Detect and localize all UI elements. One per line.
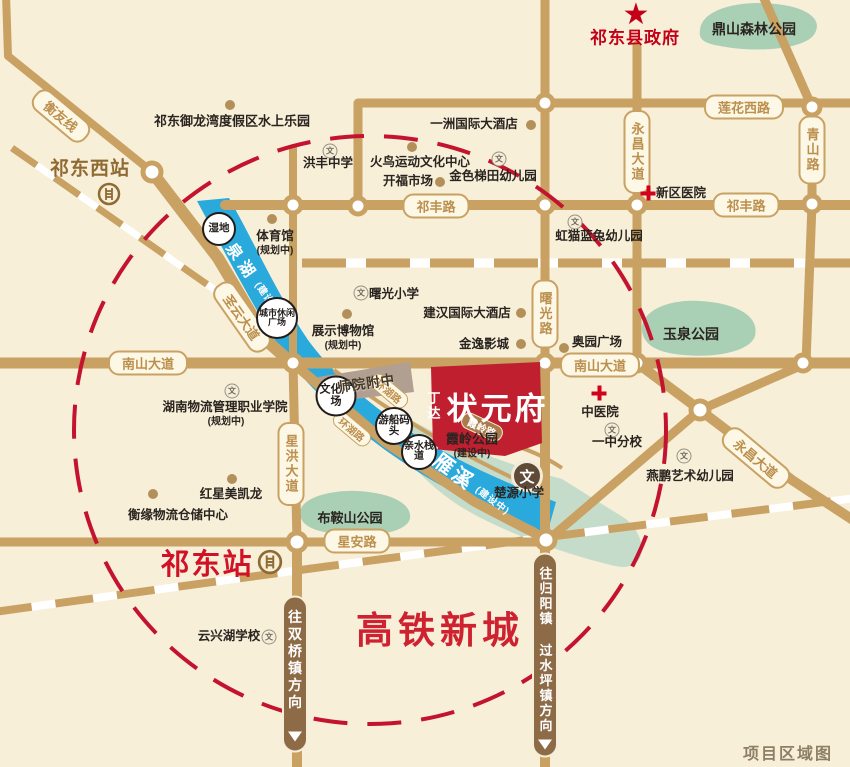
west-station-label: 祁东西站 — [50, 154, 130, 181]
school-icon: 文 — [677, 449, 692, 464]
road-pill-nanshan-avenue-west: 南山大道 — [108, 351, 188, 376]
poi-dot — [526, 120, 536, 130]
poi-label-new-district-hospital: 新区医院 — [656, 186, 706, 200]
poi-dot — [267, 214, 277, 224]
poi-label-kaifu-market: 开福市场 — [383, 174, 433, 188]
school-icon: 文 — [492, 152, 507, 167]
poi-dot — [516, 308, 526, 318]
poi-status-exhibition-museum: (规划中) — [325, 337, 362, 352]
road-pill-yongchang-avenue-north: 永昌大道 — [624, 110, 651, 194]
road-pill-qifeng-road-east: 祁丰路 — [712, 193, 779, 218]
road-pill-shuguang-road: 曙光路 — [532, 280, 559, 349]
poi-label-yanpeng-kindergarten: 燕鹏艺术幼儿园 — [646, 469, 734, 483]
road-pill-xinghong-avenue: 星洪大道 — [278, 422, 305, 506]
poi-label-hongmao-kindergarten: 虹猫蓝兔幼儿园 — [555, 229, 643, 243]
road-pill-nanshan-avenue-east: 南山大道 — [560, 353, 640, 378]
poi-label-jianhan-hotel: 建汉国际大酒店 — [423, 306, 511, 320]
poi-label-aoyuan-plaza: 奥园广场 — [572, 335, 622, 349]
poi-label-hongfeng-school: 洪丰中学 — [303, 156, 353, 170]
hospital-cross-icon — [641, 186, 656, 201]
school-icon: 文 — [568, 215, 583, 230]
poi-label-yizhong-branch: 一中分校 — [592, 435, 642, 449]
project-label: 丁达 状元府 — [427, 384, 548, 429]
marker-text: 亲水栈道 — [403, 442, 435, 463]
project-name: 状元府 — [447, 384, 549, 429]
down-arrow-icon — [288, 732, 302, 742]
poi-label-shuguang-school: 曙光小学 — [369, 287, 419, 301]
marker-text: 游船码头 — [377, 415, 411, 437]
map-caption: 项目区域图 — [743, 740, 833, 764]
railway-station-icon — [257, 549, 281, 573]
poi-label-hengyuan-logistics: 衡缘物流仓储中心 — [128, 508, 228, 522]
direction-sign-text: 往归阳镇 过水坪镇方向 — [539, 567, 552, 734]
marker-city-leisure-plaza: 城市休闲广场 — [256, 297, 298, 339]
marker-text: 城市休闲广场 — [258, 309, 296, 328]
county-government-label: 祁东县政府 — [590, 24, 680, 49]
poi-status-gymnasium: (规划中) — [257, 242, 294, 257]
school-icon: 文 — [354, 286, 369, 301]
down-arrow-icon — [538, 740, 552, 750]
park-label-buanshan: 布鞍山公园 — [317, 508, 382, 527]
poi-dot — [227, 474, 237, 484]
school-icon: 文 — [262, 630, 277, 645]
railway-station-icon — [97, 182, 121, 206]
poi-label-tcm-hospital: 中医院 — [581, 405, 619, 419]
poi-label-yunxinghu-school: 云兴湖学校 — [198, 629, 261, 643]
hospital-cross-icon — [592, 386, 607, 401]
poi-dot — [435, 177, 445, 187]
poi-status-logistics-college: (规划中) — [208, 413, 245, 428]
park-shapes — [300, 3, 817, 567]
marker-wetland: 湿地 — [202, 212, 236, 246]
poi-label-hongxing: 红星美凯龙 — [200, 487, 263, 501]
school-icon: 文 — [225, 384, 240, 399]
poi-dot — [225, 100, 235, 110]
poi-label-jinse-kindergarten: 金色梯田幼儿园 — [449, 169, 537, 183]
poi-dot — [148, 489, 158, 499]
poi-label-yulongwan: 祁东御龙湾度假区水上乐园 — [154, 115, 310, 130]
poi-dot — [407, 142, 417, 152]
direction-sign-text: 往双桥镇方向 — [288, 610, 302, 712]
road-pill-qifeng-road-west: 祁丰路 — [402, 194, 469, 219]
poi-dot — [559, 343, 569, 353]
poi-dot — [516, 339, 526, 349]
park-label-dingshan: 鼎山森林公园 — [712, 19, 796, 39]
poi-label-jinyi-cinema: 金逸影城 — [459, 337, 509, 351]
direction-sign-guiyang-shuiping: 往归阳镇 过水坪镇方向 — [532, 553, 558, 758]
park-label-yuquan: 玉泉公园 — [663, 324, 719, 344]
marker-waterside-walk: 亲水栈道 — [401, 434, 437, 470]
poi-label-yizhou-hotel: 一洲国际大酒店 — [430, 117, 518, 131]
road-pill-qingshan-road: 青山路 — [799, 116, 826, 185]
poi-label-chuyuan-school: 楚源小学 — [494, 486, 544, 500]
direction-sign-shuangqiao: 往双桥镇方向 — [282, 596, 308, 753]
road-pill-lianhua-west-road: 莲花西路 — [704, 95, 784, 120]
main-station-label: 祁东站 — [160, 541, 253, 583]
project-area-map: 衡友线 圣云大道 祁丰路 祁丰路 莲花西路 青山路 永昌大道 曙光路 南山大道 … — [0, 0, 850, 767]
hsr-new-city-label: 高铁新城 — [356, 600, 524, 654]
poi-label-huoniao-center: 火鸟运动文化中心 — [370, 155, 470, 169]
poi-dot — [342, 309, 352, 319]
project-brand: 丁达 — [427, 392, 440, 421]
road-pill-xingan-road: 星安路 — [323, 529, 390, 554]
